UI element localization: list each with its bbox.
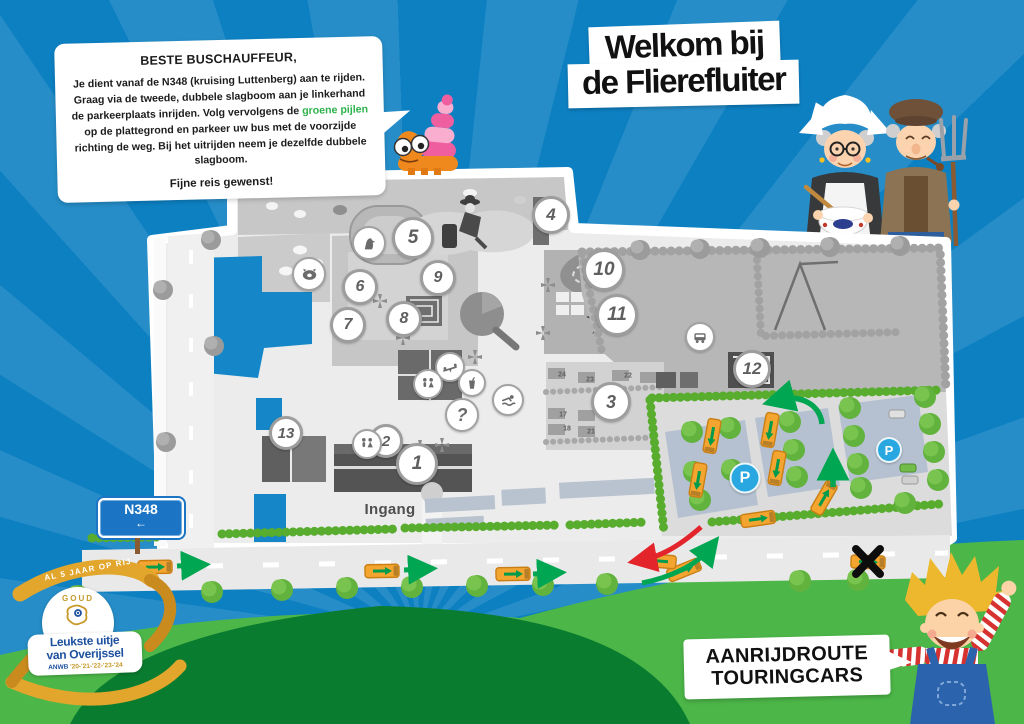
award-line2: van Overijssel (30, 646, 140, 663)
driver-instructions-bubble: BESTE BUSCHAUFFEUR, Je dient vanaf de N3… (54, 36, 386, 203)
parking-spot-number: 17 (559, 412, 567, 419)
map-marker-5: 5 (392, 217, 434, 259)
award-years: ANWB '20-'21-'22-'23-'24 (30, 661, 140, 672)
question-icon: ? (445, 398, 479, 432)
parking-spot-number: 22 (624, 373, 632, 380)
map-marker-9: 9 (420, 260, 456, 296)
map-marker-6: 6 (342, 269, 378, 305)
bubble-closing: Fijne reis gewenst! (71, 174, 371, 193)
title-line2: de Flierefluiter (582, 60, 786, 102)
medal-top-label: GOUD (42, 594, 114, 603)
parking-spot-number: 23 (586, 377, 594, 384)
award-plate: Leukste uitje van Overijssel ANWB '20-'2… (27, 631, 142, 676)
map-marker-8: 8 (386, 301, 422, 337)
map-marker-3: 3 (591, 382, 631, 422)
map-marker-4: 4 (532, 196, 570, 234)
horse-icon (352, 226, 386, 260)
bubble-heading: BESTE BUSCHAUFFEUR, (68, 48, 368, 69)
map-marker-7: 7 (330, 307, 366, 343)
map-marker-12: 12 (733, 350, 771, 388)
pig-icon (292, 257, 326, 291)
road-sign-arrow: ← (100, 518, 182, 528)
drink-icon (458, 369, 486, 397)
route-label-box: AANRIJDROUTE TOURINGCARS (683, 634, 890, 699)
map-marker-10: 10 (583, 249, 625, 291)
flyer: BESTE BUSCHAUFFEUR, Je dient vanaf de N3… (0, 0, 1024, 724)
green-arrows-highlight: groene pijlen (302, 103, 368, 117)
grandpa-figure (880, 99, 966, 246)
swim-icon (492, 384, 524, 416)
overijssel-outline-icon (63, 603, 93, 629)
map-marker-11: 11 (596, 294, 638, 336)
n348-road-sign: N348 ← (98, 498, 184, 538)
bus-stop-icon (685, 322, 715, 352)
bubble-body: Je dient vanaf de N348 (kruising Luttenb… (69, 70, 371, 173)
entrance-label: Ingang (344, 501, 436, 518)
map-marker-1: 1 (396, 443, 438, 485)
welcome-title: Welkom bij de Flierefluiter (540, 24, 828, 106)
parking-badge: P (876, 437, 902, 463)
wc-icon (352, 429, 382, 459)
road-sign-post (135, 538, 140, 554)
parking-spot-number: 18 (563, 426, 571, 433)
parking-spot-number: 21 (587, 429, 595, 436)
route-line2: TOURINGCARS (688, 664, 886, 691)
wc-icon (413, 369, 443, 399)
parking-badge: P (730, 463, 761, 494)
map-marker-13: 13 (269, 416, 303, 450)
parking-spot-number: 24 (558, 372, 566, 379)
